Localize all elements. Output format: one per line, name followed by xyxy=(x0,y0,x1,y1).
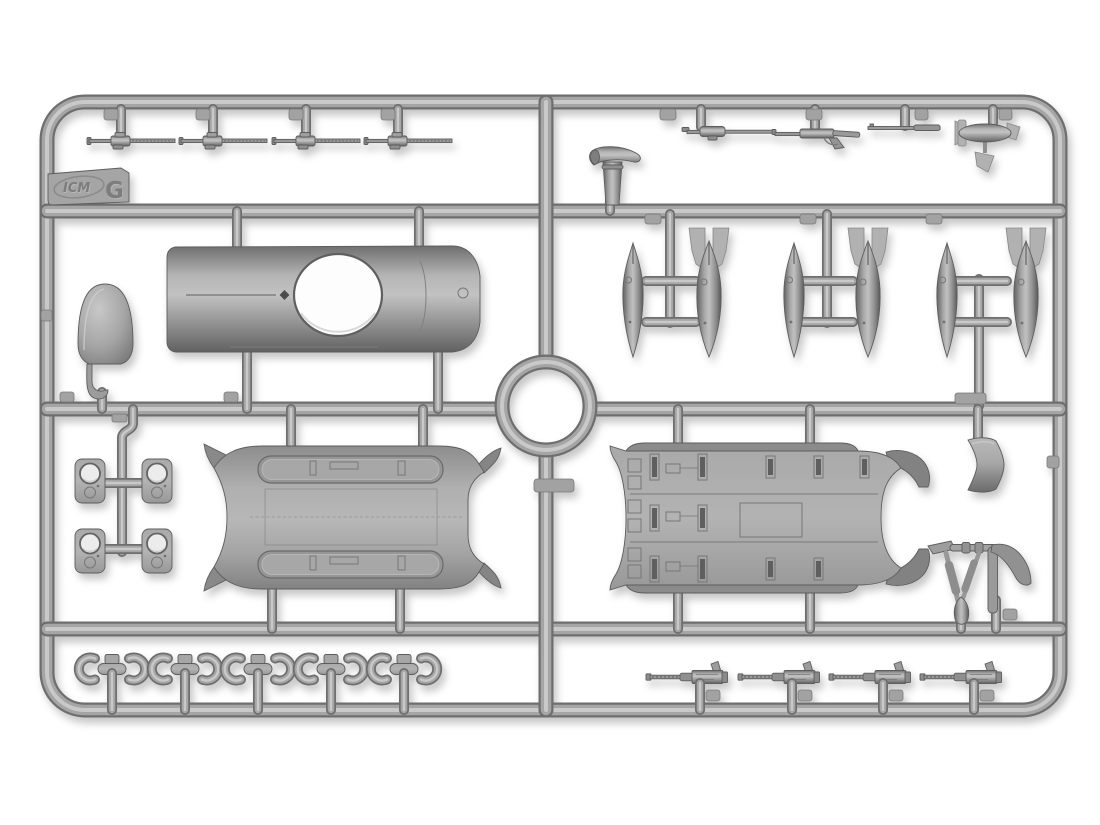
molding-tab xyxy=(999,109,1012,120)
molding-tab xyxy=(289,109,303,120)
rail-nub xyxy=(41,310,52,321)
molding-tab xyxy=(224,392,238,402)
part-number-tab xyxy=(534,479,574,492)
photo-stage: ICM ICM G G xyxy=(0,0,1100,825)
part-hatch-3 xyxy=(75,529,105,573)
molding-tab xyxy=(800,214,816,224)
part-hatch-1 xyxy=(75,459,105,503)
sprue-letter: G xyxy=(105,178,124,204)
brand-logo: ICM xyxy=(63,181,90,196)
molding-tab xyxy=(980,690,994,701)
part-hull-underside xyxy=(204,444,501,591)
molding-tab xyxy=(706,690,720,701)
molding-tab xyxy=(1003,609,1017,620)
molding-tab xyxy=(798,690,812,701)
molding-tab xyxy=(60,392,74,402)
molding-tab xyxy=(889,690,903,701)
molding-tab xyxy=(955,393,986,404)
brand-tag: ICM ICM G G xyxy=(48,168,129,205)
rail-nub xyxy=(1047,456,1059,468)
molding-tab xyxy=(660,109,676,120)
sprue-photo: ICM ICM G G xyxy=(0,0,1100,825)
part-fuselage-section xyxy=(167,246,480,352)
molding-tab xyxy=(196,109,210,120)
molding-tab xyxy=(806,109,822,120)
molding-tab xyxy=(112,414,127,422)
molding-tab xyxy=(104,109,118,120)
molding-tab xyxy=(926,214,942,224)
molding-tab xyxy=(915,109,928,120)
fuselage-turret-opening xyxy=(294,254,382,336)
part-hatch-4 xyxy=(142,529,172,573)
molding-tab xyxy=(645,214,661,224)
molding-tab xyxy=(381,109,395,120)
part-hatch-2 xyxy=(142,459,172,503)
part-cowling-dome xyxy=(78,284,133,364)
